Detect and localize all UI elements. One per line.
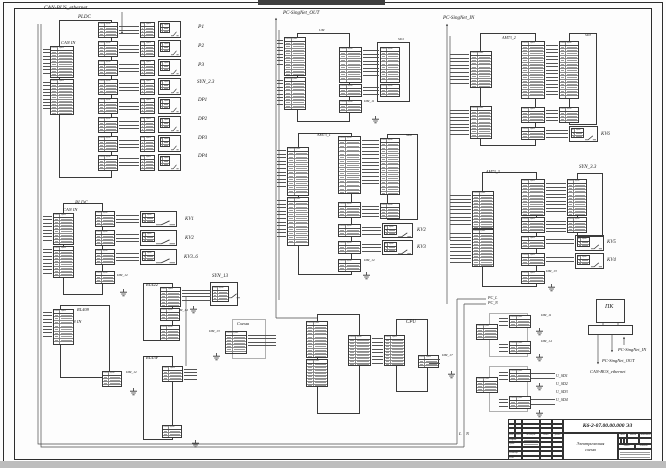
wire-bundle-line xyxy=(277,100,283,101)
connector-table: КонтЦепь xyxy=(384,335,405,366)
table-header-kont: Конт xyxy=(288,198,295,201)
wire-bundle-line xyxy=(372,338,383,339)
wire-bundle-line xyxy=(43,240,52,241)
table-header-cep: Цепь xyxy=(163,119,169,122)
wire-bundle-line xyxy=(277,40,283,41)
table-header-kont: Конт xyxy=(522,180,529,183)
table-header-cep: Цепь xyxy=(218,287,228,290)
wire-bundle-line xyxy=(363,50,379,51)
wire-bundle-line xyxy=(43,85,50,86)
wire-bundle-line xyxy=(277,150,286,151)
wire-bundle-line xyxy=(119,165,139,166)
wire-bundle-line xyxy=(277,179,286,180)
wire-bundle-line xyxy=(119,125,139,126)
wire-bundle-line xyxy=(277,207,286,208)
label-kv3-center: KV3 xyxy=(417,245,426,250)
wire-bundle-line xyxy=(182,300,211,301)
wire-bundle-line xyxy=(116,241,139,242)
connector-table: КонтЦепь xyxy=(521,271,545,284)
table-header-kont: Конт xyxy=(510,397,517,400)
contact-symbol xyxy=(171,121,179,129)
connector-table: КонтЦепь xyxy=(559,41,579,99)
wire-bundle-line xyxy=(277,154,286,155)
table-header-kont: Конт xyxy=(340,101,347,104)
table-header-cep: Цепь xyxy=(387,139,399,142)
table-header-cep: Цепь xyxy=(387,85,399,88)
wire-bundle-line xyxy=(362,165,379,166)
wire-bundle-line xyxy=(119,162,139,163)
connector-table: КонтЦепь xyxy=(50,79,74,115)
connector-table: КонтЦепь xyxy=(98,60,118,76)
connector-table: КонтЦепь xyxy=(95,211,115,227)
table-header-cep: Цепь xyxy=(58,80,73,83)
connector-table: КонтЦепь xyxy=(140,60,155,76)
connector-table: КонтЦепь xyxy=(418,355,439,368)
wire-bundle-line xyxy=(362,230,381,231)
connector-table: КонтЦепь xyxy=(98,155,118,171)
label-kv2-center: KV2 xyxy=(417,228,426,233)
wire-bundle-line xyxy=(546,204,566,205)
ground-symbol xyxy=(535,349,544,357)
connector-table: КонтЦепь xyxy=(140,41,155,57)
wire-bundle-line xyxy=(277,186,286,187)
table-header-cep: Цепь xyxy=(484,378,497,381)
wire-bundle-line xyxy=(43,219,52,220)
wire-bundle-line xyxy=(43,56,50,57)
label-can-bus-ethernet-bottom: CAN-BUS_ethernet xyxy=(590,370,626,375)
wire-bundle-line xyxy=(119,33,139,34)
table-header-cep: Цепь xyxy=(146,252,153,255)
connector-table: КонтЦепь xyxy=(160,308,180,321)
table-header-cep: Цепь xyxy=(145,156,154,159)
wire-bundle-line xyxy=(43,92,50,93)
wire-bundle-line xyxy=(362,213,379,214)
table-header-cep: Цепь xyxy=(388,226,395,229)
wire-bundle-line xyxy=(277,182,286,183)
wire-bundle-line xyxy=(372,352,383,353)
relay-pin-table: КонтЦепь xyxy=(384,242,397,252)
wire-bundle-line xyxy=(248,345,276,346)
connector-table: КонтЦепь xyxy=(160,325,180,341)
wire-bundle-line xyxy=(43,69,50,70)
relay-pin-table: КонтЦепь xyxy=(160,118,170,128)
contact-symbol xyxy=(585,130,596,138)
table-header-cep: Цепь xyxy=(529,42,544,45)
connector-table: КонтЦепь xyxy=(225,331,247,354)
table-header-cep: Цепь xyxy=(105,61,117,64)
ground-symbol xyxy=(371,111,380,119)
wire-bundle-line xyxy=(450,134,469,135)
wire-bundle-line xyxy=(531,404,555,405)
relay-pin-table: КонтЦепь xyxy=(142,251,155,261)
contact-symbol xyxy=(171,45,179,53)
wire-bundle-line xyxy=(277,94,283,95)
table-header-cep: Цепь xyxy=(391,336,404,339)
wire-bundle-line xyxy=(499,321,508,322)
wire-bundle-line xyxy=(277,64,283,65)
wire-bundle-line xyxy=(119,90,139,91)
wire-bundle-line xyxy=(499,399,508,400)
connector-table: КонтЦепь xyxy=(380,84,400,97)
label-sd3: SD3 xyxy=(585,34,591,38)
table-header-kont: Конт xyxy=(51,80,58,83)
connector-table: КонтЦепь xyxy=(567,217,587,233)
table-header-kont: Конт xyxy=(522,237,529,240)
relay-pin-table: КонтЦепь xyxy=(142,213,155,223)
table-header-kont: Конт xyxy=(473,230,480,233)
wire-bundle-line xyxy=(119,106,139,107)
wire-bundle-line xyxy=(450,247,471,248)
wire-bundle-line xyxy=(450,251,471,252)
contact-symbol xyxy=(156,253,175,261)
relay-pin-table: КонтЦепь xyxy=(160,23,170,33)
wire-bundle-line xyxy=(546,66,558,67)
label-rl422: RL422 xyxy=(146,283,158,288)
label-pm-17: ПМ_17 xyxy=(442,354,453,358)
table-header-kont: Конт xyxy=(471,107,478,110)
connector-table: КонтЦепь xyxy=(140,117,155,133)
connector-table: КонтЦепь xyxy=(338,241,361,254)
table-header-kont: Конт xyxy=(339,203,346,206)
table-header-kont: Конт xyxy=(477,378,484,381)
wire-bundle-line xyxy=(119,102,139,103)
wire-bundle-line xyxy=(119,30,139,31)
table-header-cep: Цепь xyxy=(163,62,169,65)
table-header-kont: Конт xyxy=(522,128,529,131)
connector-table: КонтЦепь xyxy=(287,147,309,196)
wire-bundle-line xyxy=(546,52,558,53)
wire-bundle-line xyxy=(546,137,568,138)
table-header-kont: Конт xyxy=(288,148,295,151)
wire-bundle-line xyxy=(450,124,469,125)
table-header-cep: Цепь xyxy=(480,230,493,233)
table-header-cep: Цепь xyxy=(356,336,370,339)
wire-bundle-line xyxy=(531,373,555,374)
label-pm-14-br: ПМ_14 xyxy=(541,340,552,344)
wire-bundle-line xyxy=(277,43,283,44)
table-header-kont: Конт xyxy=(226,332,233,335)
table-header-cep: Цепь xyxy=(105,99,117,102)
table-header-cep: Цепь xyxy=(581,256,588,259)
table-header-cep: Цепь xyxy=(346,260,360,263)
wire-bundle-line xyxy=(362,154,379,155)
wire-bundle-line xyxy=(277,60,283,61)
table-header-cep: Цепь xyxy=(102,231,114,234)
wire-bundle-line xyxy=(450,58,469,59)
wire-bundle-line xyxy=(363,75,379,76)
wire-bundle-line xyxy=(450,199,471,200)
table-header-cep: Цепь xyxy=(529,272,544,275)
relay-pin-table: КонтЦепь xyxy=(577,237,590,247)
table-header-cep: Цепь xyxy=(102,212,114,215)
relay-pin-table: КонтЦепь xyxy=(160,80,170,90)
wire-bundle-line xyxy=(43,322,52,323)
contact-symbol xyxy=(171,83,179,91)
tb-sign-date xyxy=(552,456,563,460)
wire-bundle-line xyxy=(546,261,574,262)
wire-bundle-line xyxy=(450,72,469,73)
table-header-cep: Цепь xyxy=(102,250,114,253)
wire-bundle-line xyxy=(363,87,379,88)
wire-bundle-line xyxy=(43,326,52,327)
wire-bundle-line xyxy=(429,359,440,360)
wire-bundle-line xyxy=(119,26,139,27)
wire-bundle-line xyxy=(546,257,574,258)
label-sd1: SD1 xyxy=(398,38,404,42)
wire-bundle-line xyxy=(362,144,379,145)
wire-bundle-line xyxy=(546,187,566,188)
wire-bundle-line xyxy=(277,80,283,81)
ground-symbol xyxy=(189,301,198,309)
table-header-cep: Цепь xyxy=(575,129,582,132)
contact-symbol xyxy=(171,26,179,34)
wire-bundle-line xyxy=(43,52,50,53)
label-cpu: CPU xyxy=(406,320,416,325)
label-dp3: DP3 xyxy=(198,136,207,141)
wire-bundle-line xyxy=(116,234,139,235)
label-um: UM xyxy=(319,29,324,33)
wire-bundle-line xyxy=(184,369,197,370)
table-header-kont: Конт xyxy=(522,254,529,257)
wire-bundle-line xyxy=(531,399,555,400)
wire-bundle-line xyxy=(450,65,469,66)
label-kv1: KV1 xyxy=(185,217,194,222)
wire-bundle-line xyxy=(119,140,139,141)
schematic-page: CAN-BUS_ethernetPLDCCAN INP1P2P3SYN_2.3D… xyxy=(0,0,666,468)
label-pc-singnet-out-bottom: PC-SingNet_OUT xyxy=(602,359,635,364)
table-header-cep: Цепь xyxy=(480,192,493,195)
wire-bundle-line xyxy=(546,49,558,50)
wire-bundle-line xyxy=(248,338,276,339)
wire-bundle-line xyxy=(450,233,471,234)
wire-bundle-line xyxy=(546,194,566,195)
connector-table: КонтЦепь xyxy=(284,37,306,76)
wire-bundle-line xyxy=(43,99,50,100)
contact-symbol xyxy=(156,234,175,242)
wire-bundle-line xyxy=(362,216,379,217)
wire-bundle-line xyxy=(184,372,197,373)
connector-table: КонтЦепь xyxy=(102,371,122,387)
wire-bundle-line xyxy=(546,221,566,222)
wire-bundle-line xyxy=(277,157,286,158)
table-header-cep: Цепь xyxy=(163,100,169,103)
wire-bundle-line xyxy=(450,220,471,221)
label-pc-singnet-in-bottom: PC-SingNet_IN xyxy=(618,348,646,353)
wire-bundle-line xyxy=(277,222,286,223)
connector-table: КонтЦепь xyxy=(160,287,181,307)
wire-bundle-line xyxy=(119,147,139,148)
table-header-cep: Цепь xyxy=(517,370,530,373)
wire-bundle-line xyxy=(546,94,558,95)
connector-table: КонтЦепь xyxy=(521,127,545,140)
wire-bundle-line xyxy=(119,45,139,46)
block-pk-bus-bar xyxy=(588,325,633,335)
connector-table: КонтЦепь xyxy=(98,22,118,38)
wire-bundle-line xyxy=(43,312,52,313)
connector-table: КонтЦепь xyxy=(140,155,155,171)
label-kv3-6: KV3..6 xyxy=(184,255,198,260)
wire-bundle-line xyxy=(362,183,379,184)
table-header-kont: Конт xyxy=(339,242,346,245)
wire-bundle-line xyxy=(546,63,558,64)
wire-bundle-line xyxy=(362,244,381,245)
table-header-cep: Цепь xyxy=(347,48,361,51)
wire-bundle-line xyxy=(182,293,211,294)
label-pm-12-center: ПМ_12 xyxy=(364,259,375,263)
table-header-kont: Конт xyxy=(522,42,529,45)
wire-bundle-line xyxy=(43,89,50,90)
wire-bundle-line xyxy=(450,79,469,80)
wire-bundle-line xyxy=(499,406,508,407)
wire-bundle-line xyxy=(450,209,471,210)
wire-bundle-line xyxy=(363,54,379,55)
label-am73-2: АМ73_2 xyxy=(502,36,516,40)
connector-table: КонтЦепь xyxy=(567,179,587,216)
ground-symbol xyxy=(547,279,556,287)
wire-bundle-line xyxy=(43,216,52,217)
wire-bundle-line xyxy=(450,224,471,225)
table-header-cep: Цепь xyxy=(478,107,491,110)
wire-bundle-line xyxy=(362,251,381,252)
wire-bundle-line xyxy=(546,113,558,114)
connector-table: КонтЦепь xyxy=(95,249,115,265)
wire-bundle-line xyxy=(362,140,379,141)
wire-bundle-line xyxy=(43,249,52,250)
doc-name: Электрическаясхема xyxy=(577,441,605,452)
wire-bundle-line xyxy=(277,175,286,176)
wire-bundle-line xyxy=(362,206,379,207)
table-header-cep: Цепь xyxy=(145,137,154,140)
ground-symbol xyxy=(535,378,544,386)
contact-symbol xyxy=(171,64,179,72)
wire-bundle-line xyxy=(450,213,471,214)
table-header-cep: Цепь xyxy=(529,108,544,111)
connector-table: КонтЦепь xyxy=(95,230,115,246)
label-kv6: KV6 xyxy=(601,132,610,137)
wire-bundle-line xyxy=(119,158,139,159)
label-syn-3-3: SYN_3.3 xyxy=(579,165,596,170)
connector-table: КонтЦепь xyxy=(476,377,498,393)
connector-table: КонтЦепь xyxy=(338,259,361,272)
wire-bundle-line xyxy=(450,127,469,128)
table-header-kont: Конт xyxy=(307,360,314,363)
connector-table: КонтЦепь xyxy=(306,321,328,358)
wire-bundle-line xyxy=(450,110,469,111)
table-header-cep: Цепь xyxy=(163,81,169,84)
label-pldc-1: PLDC xyxy=(78,15,91,20)
table-header-cep: Цепь xyxy=(529,128,544,131)
table-header-cep: Цепь xyxy=(146,233,153,236)
connector-table: КонтЦепь xyxy=(162,366,183,382)
wire-bundle-line xyxy=(277,168,286,169)
table-header-cep: Цепь xyxy=(145,99,154,102)
table-header-cep: Цепь xyxy=(146,214,153,217)
connector-table: КонтЦепь xyxy=(140,136,155,152)
contact-symbol xyxy=(171,140,179,148)
wire-bundle-line xyxy=(499,375,508,376)
label-u-sd3: U_SD3 xyxy=(556,390,568,394)
table-header-cep: Цепь xyxy=(295,148,308,151)
wire-bundle-line xyxy=(43,236,52,237)
connector-table: КонтЦепь xyxy=(509,341,531,354)
table-header-cep: Цепь xyxy=(105,80,117,83)
table-header-cep: Цепь xyxy=(167,326,179,329)
label-pc-singnet-out-top: PC-SingNet_OUT xyxy=(283,11,319,16)
wire-bundle-line xyxy=(363,64,379,65)
connector-table: КонтЦепь xyxy=(50,46,74,78)
wire-bundle-line xyxy=(119,144,139,145)
wire-bundle-line xyxy=(119,83,139,84)
table-header-kont: Конт xyxy=(510,370,517,373)
relay-pin-table: КонтЦепь xyxy=(160,137,170,147)
wire-bundle-line xyxy=(372,359,383,360)
label-kv5: KV5 xyxy=(607,240,616,245)
wire-bundle-line xyxy=(119,121,139,122)
relay-pin-table: КонтЦепь xyxy=(160,156,170,166)
label-pm-11-br: ПМ_11 xyxy=(541,314,551,318)
wire-bundle-line xyxy=(499,318,508,319)
label-pk: ПК xyxy=(605,304,613,310)
wire-bundle-line xyxy=(546,80,558,81)
table-header-cep: Цепь xyxy=(314,322,327,325)
wire-bundle-line xyxy=(43,233,52,234)
bottom-strip xyxy=(0,461,666,468)
label-pm-13-left: ПМ_13 xyxy=(209,330,220,334)
connector-table: КонтЦепь xyxy=(472,229,494,267)
table-header-cep: Цепь xyxy=(60,310,73,313)
wire-bundle-line xyxy=(277,225,286,226)
label-dp4: DP4 xyxy=(198,154,207,159)
wire-bundle-line xyxy=(43,102,50,103)
connector-table: КонтЦепь xyxy=(559,107,579,123)
wire-bundle-line xyxy=(43,105,50,106)
wire-bundle-line xyxy=(450,217,471,218)
wire-bundle-line xyxy=(372,345,383,346)
wire-bundle-line xyxy=(277,54,283,55)
wire-bundle-line xyxy=(363,90,379,91)
wire-bundle-line xyxy=(499,325,508,326)
label-rl43f: RL43F xyxy=(146,356,159,361)
wire-bundle-line xyxy=(450,237,471,238)
wire-bundle-line xyxy=(277,164,286,165)
wire-bundle-line xyxy=(450,117,469,118)
wire-bundle-line xyxy=(277,87,283,88)
table-header-cep: Цепь xyxy=(105,137,117,140)
connector-table: КонтЦепь xyxy=(140,98,155,114)
wire-bundle-line xyxy=(116,219,139,220)
wire-bundle-line xyxy=(450,76,469,77)
wire-bundle-line xyxy=(182,296,211,297)
connector-table: КонтЦепь xyxy=(284,77,306,110)
wire-bundle-line xyxy=(372,363,383,364)
wire-bundle-line xyxy=(43,273,52,274)
ground-symbol xyxy=(447,366,456,374)
contact-symbol xyxy=(156,215,175,223)
table-header-cep: Цепь xyxy=(529,254,544,257)
table-header-cep: Цепь xyxy=(145,61,154,64)
connector-table: КонтЦепь xyxy=(521,41,545,99)
wire-bundle-line xyxy=(277,83,283,84)
connector-table: КонтЦепь xyxy=(338,224,361,237)
table-header-cep: Цепь xyxy=(346,203,360,206)
table-header-cep: Цепь xyxy=(109,372,121,375)
contact-symbol xyxy=(171,159,179,167)
relay-pin-table: КонтЦепь xyxy=(160,99,170,109)
label-kv4: KV4 xyxy=(607,258,616,263)
wire-bundle-line xyxy=(450,262,471,263)
label-p1: P1 xyxy=(198,25,204,31)
wire-bundle-line xyxy=(277,57,283,58)
